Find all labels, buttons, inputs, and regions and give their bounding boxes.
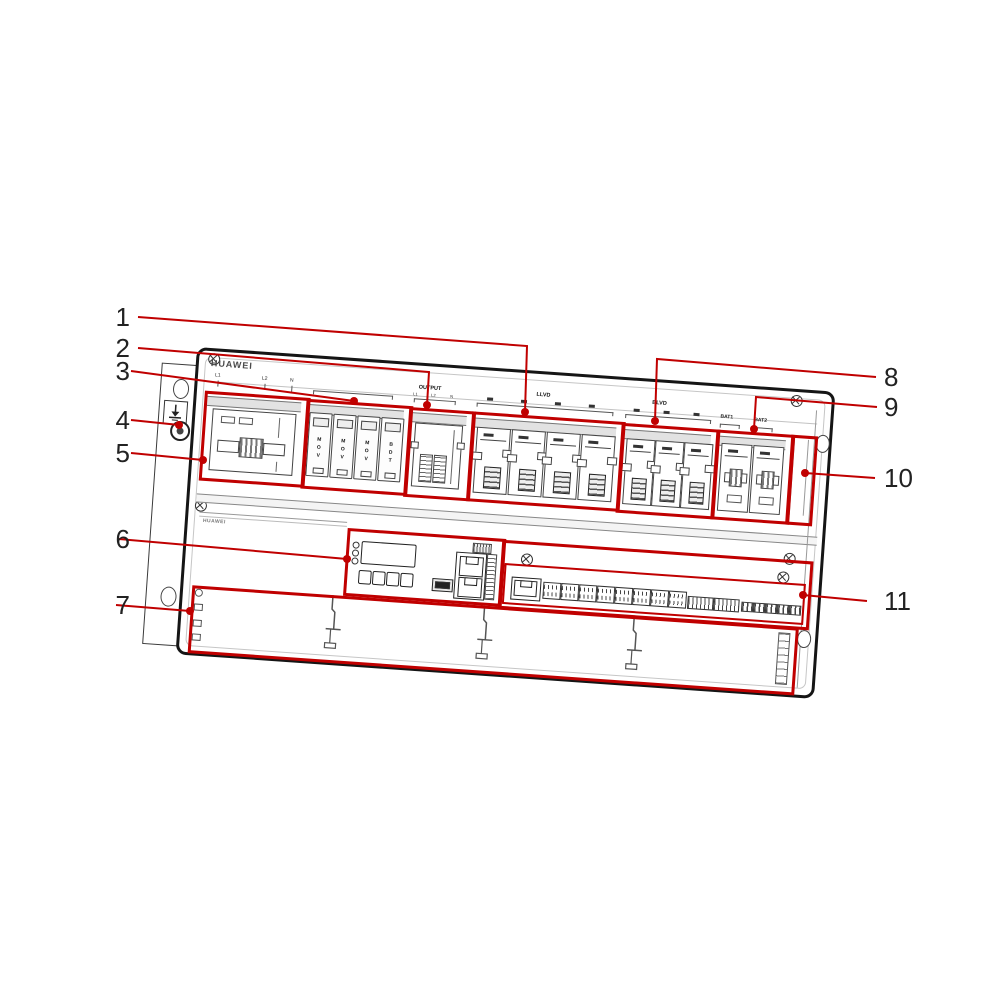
- callout-number-7: 7: [70, 591, 130, 619]
- leader-line-5: [131, 453, 203, 460]
- leader-dot-2: [423, 401, 431, 409]
- callout-number-11: 11: [884, 587, 944, 615]
- callout-number-8: 8: [884, 363, 944, 391]
- figure-canvas: HUAWEI L1 L2 N OUTPUT L1 L2 N LLVD BLVD …: [0, 0, 1006, 1006]
- leader-dot-6: [343, 555, 351, 563]
- leader-dot-3: [350, 397, 358, 405]
- leader-dot-5: [199, 456, 207, 464]
- leader-dot-7: [186, 607, 194, 615]
- callout-number-4: 4: [70, 406, 130, 434]
- callout-number-5: 5: [70, 439, 130, 467]
- callout-number-1: 1: [70, 303, 130, 331]
- leader-line-10: [805, 473, 875, 478]
- leader-dot-10: [801, 469, 809, 477]
- leader-line-9: [754, 397, 877, 429]
- leader-dot-4: [175, 421, 183, 429]
- callout-number-3: 3: [70, 357, 130, 385]
- leader-dot-8: [651, 417, 659, 425]
- callout-leader-lines: [0, 0, 1006, 1006]
- leader-line-3: [131, 371, 354, 401]
- leader-dot-1: [521, 408, 529, 416]
- leader-line-4: [131, 420, 179, 425]
- leader-dot-9: [750, 425, 758, 433]
- callout-number-10: 10: [884, 464, 944, 492]
- callout-number-6: 6: [70, 525, 130, 553]
- leader-dot-11: [799, 591, 807, 599]
- callout-number-9: 9: [884, 393, 944, 421]
- leader-line-6: [119, 539, 347, 559]
- leader-line-2: [138, 348, 429, 405]
- leader-line-11: [803, 595, 867, 601]
- leader-line-8: [655, 359, 876, 421]
